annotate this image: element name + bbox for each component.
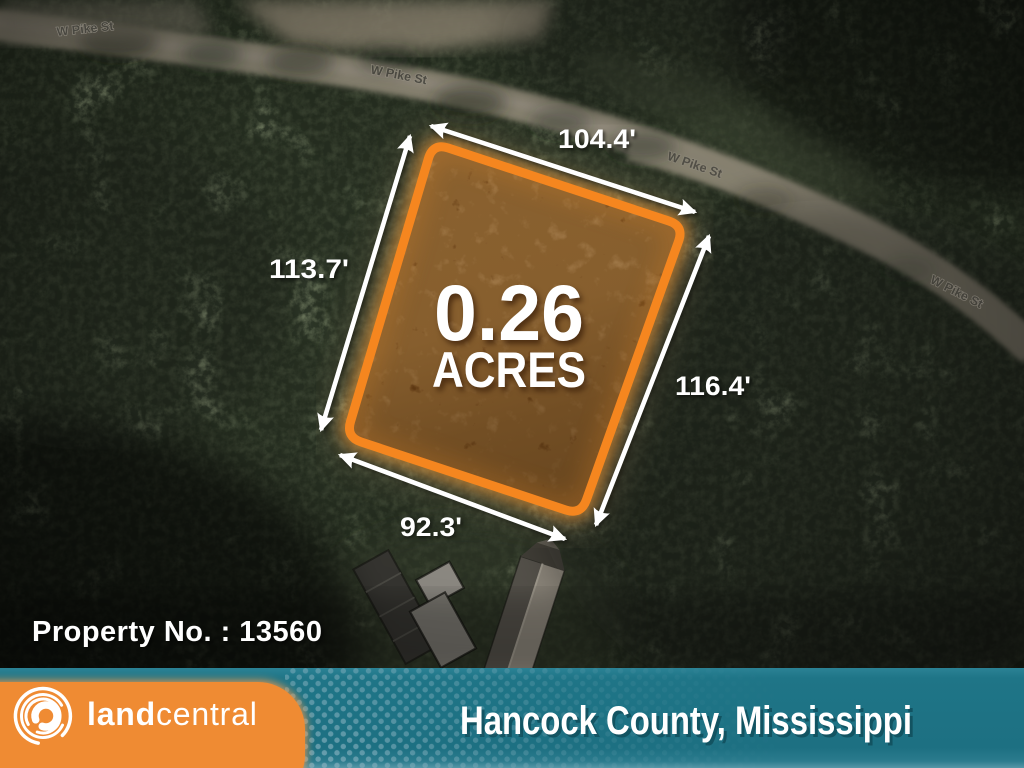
svg-text:Hancock County, Mississippi: Hancock County, Mississippi xyxy=(460,699,912,743)
svg-text:113.7': 113.7' xyxy=(269,254,349,284)
svg-text:116.4': 116.4' xyxy=(675,371,751,401)
svg-text:Property No. : 13560: Property No. : 13560 xyxy=(32,616,322,648)
svg-text:landcentral: landcentral xyxy=(87,696,258,732)
svg-text:ACRES: ACRES xyxy=(432,342,586,398)
svg-text:92.3': 92.3' xyxy=(400,512,462,542)
svg-text:104.4': 104.4' xyxy=(558,124,636,154)
